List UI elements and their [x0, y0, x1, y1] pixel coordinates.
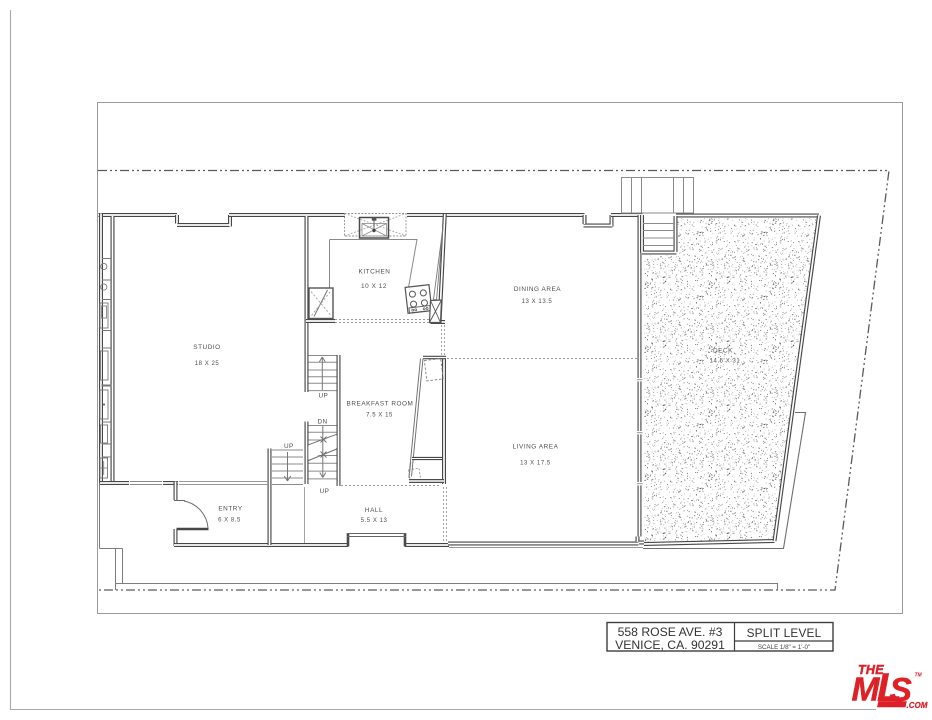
svg-text:UP: UP	[319, 393, 329, 400]
svg-text:UP: UP	[284, 443, 294, 450]
svg-text:18 X 25: 18 X 25	[195, 361, 220, 367]
svg-text:HALL: HALL	[365, 507, 383, 514]
svg-text:13 X 13.5: 13 X 13.5	[522, 299, 553, 305]
svg-text:TM: TM	[915, 673, 923, 679]
svg-text:13 X 17.5: 13 X 17.5	[520, 461, 551, 467]
svg-text:10 X 12: 10 X 12	[361, 283, 387, 290]
svg-text:LIVING AREA: LIVING AREA	[513, 444, 559, 451]
svg-text:SPLIT LEVEL: SPLIT LEVEL	[747, 626, 822, 640]
svg-text:ENTRY: ENTRY	[218, 506, 242, 513]
svg-text:DECK: DECK	[713, 348, 733, 355]
svg-text:.COM: .COM	[907, 701, 928, 710]
svg-text:DN: DN	[317, 419, 327, 426]
svg-text:14.5 X 31: 14.5 X 31	[710, 359, 741, 365]
svg-text:VENICE, CA. 90291: VENICE, CA. 90291	[615, 638, 725, 652]
svg-text:STUDIO: STUDIO	[193, 344, 220, 351]
svg-text:6 X 8.5: 6 X 8.5	[218, 518, 241, 524]
svg-text:BREAKFAST ROOM: BREAKFAST ROOM	[347, 401, 414, 408]
svg-text:KITCHEN: KITCHEN	[359, 269, 391, 276]
svg-text:DINING AREA: DINING AREA	[514, 286, 561, 293]
svg-text:558 ROSE AVE. #3: 558 ROSE AVE. #3	[618, 625, 723, 639]
svg-text:5.5 X 13: 5.5 X 13	[361, 518, 388, 524]
svg-text:7.5 X 15: 7.5 X 15	[366, 413, 393, 419]
svg-text:SCALE 1/8" = 1'-0": SCALE 1/8" = 1'-0"	[758, 644, 810, 651]
svg-text:UP: UP	[320, 488, 330, 495]
